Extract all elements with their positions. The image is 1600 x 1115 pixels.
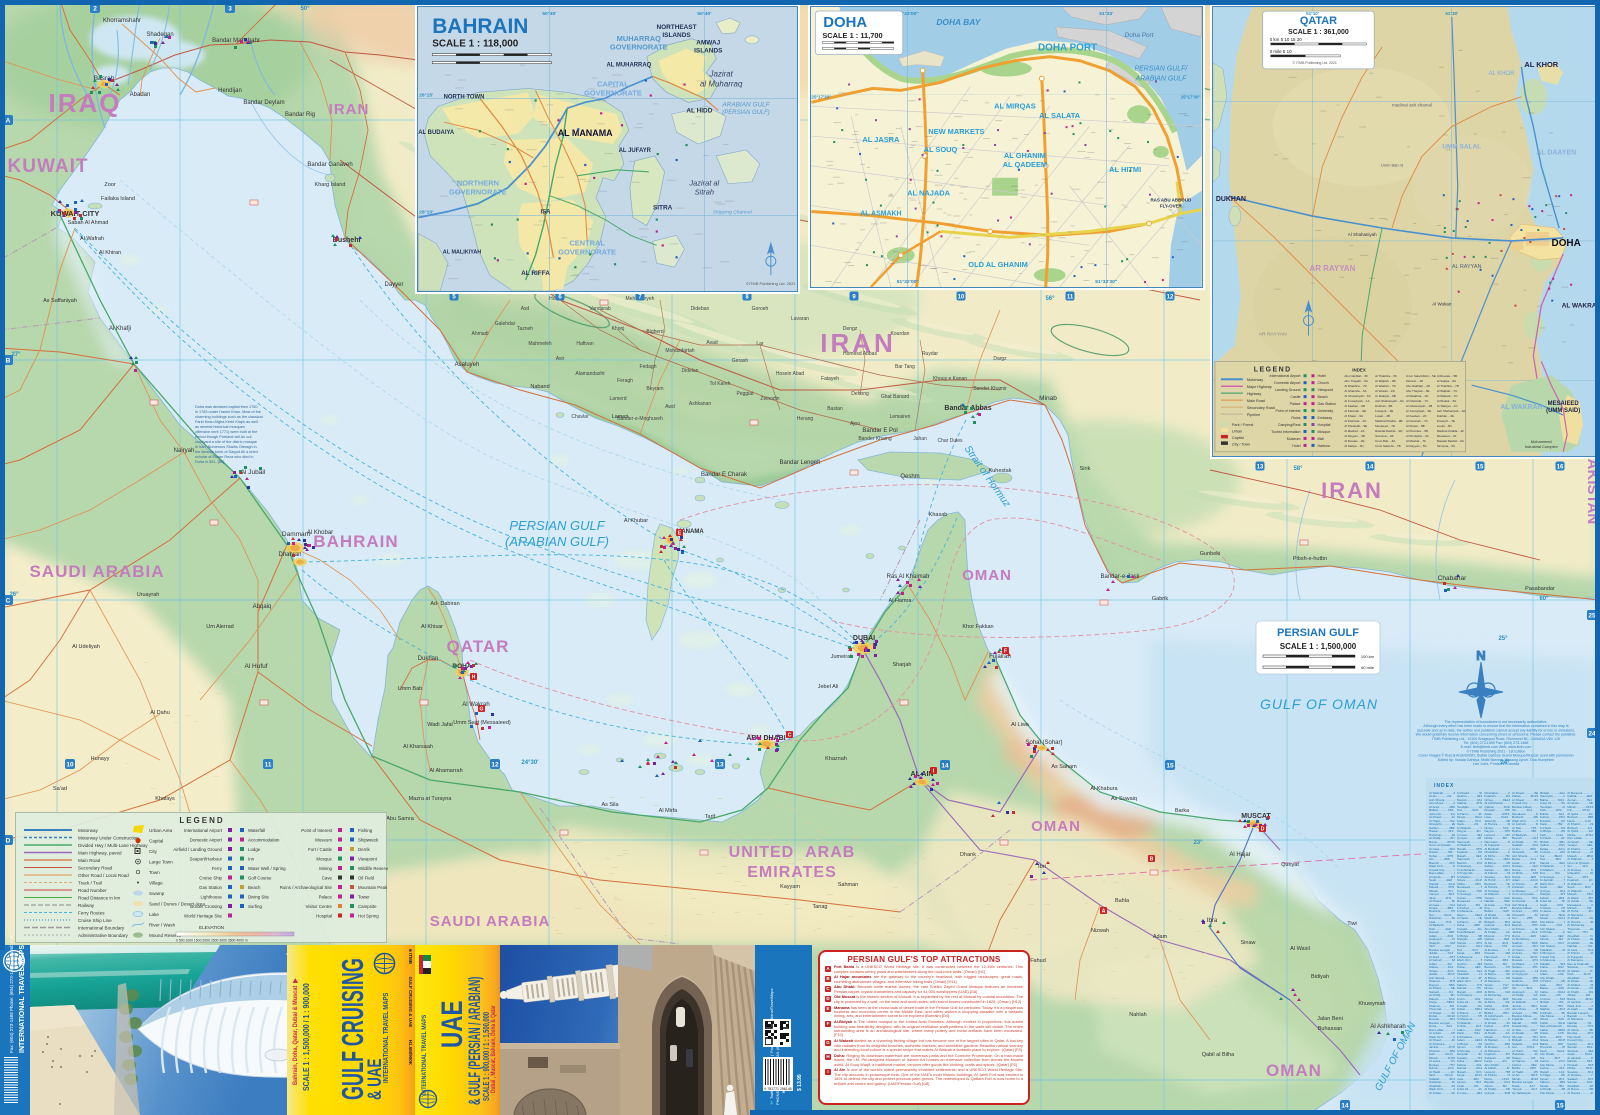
svg-text:Park / Forest: Park / Forest — [1232, 423, 1255, 427]
svg-text:Dideban: Dideban — [691, 306, 710, 312]
svg-text:Bandar Ganaveh: Bandar Ganaveh — [307, 162, 352, 168]
svg-text:EMIRATES: EMIRATES — [747, 864, 836, 881]
svg-text:BAHRAIN: BAHRAIN — [432, 15, 528, 38]
svg-text:26°: 26° — [9, 592, 19, 598]
svg-text:Al Ahamarrah: Al Ahamarrah — [429, 768, 462, 774]
svg-text:AL HIDD: AL HIDD — [686, 107, 712, 114]
svg-text:Village: Village — [149, 881, 163, 886]
svg-text:Abadan: Abadan — [130, 92, 151, 98]
svg-text:PERSIAN GULF: PERSIAN GULF — [509, 518, 605, 533]
svg-text:Wildlife Reserve: Wildlife Reserve — [358, 866, 388, 871]
svg-text:Viewpoint: Viewpoint — [358, 857, 378, 862]
svg-text:Uruayrah: Uruayrah — [137, 592, 160, 598]
svg-text:ISA: ISA — [540, 210, 551, 216]
svg-text:25°: 25° — [1498, 636, 1508, 642]
svg-text:Jazirat: Jazirat — [709, 70, 734, 79]
svg-text:15: 15 — [1556, 1103, 1564, 1110]
svg-text:Dukhan: Dukhan — [418, 656, 439, 662]
svg-text:10: 10 — [66, 762, 74, 769]
svg-text:AL GHANIM: AL GHANIM — [1004, 151, 1046, 160]
svg-text:Mining: Mining — [319, 866, 332, 871]
svg-text:PERSIAN GULF: PERSIAN GULF — [1277, 627, 1359, 639]
svg-text:Al Mashaf....2A: Al Mashaf....2A — [1344, 429, 1364, 433]
svg-text:Al Udeliyah: Al Udeliyah — [72, 644, 100, 650]
svg-text:Asir: Asir — [556, 356, 565, 362]
svg-text:Jahan: Jahan — [913, 436, 927, 442]
svg-text:Ruydar: Ruydar — [922, 351, 938, 357]
svg-text:SITRA: SITRA — [653, 205, 673, 212]
svg-text:Al Mashaf....7F: Al Mashaf....7F — [1406, 439, 1426, 443]
svg-text:Tiwi: Tiwi — [1347, 921, 1357, 927]
svg-text:AL ASMAKH: AL ASMAKH — [860, 211, 901, 218]
svg-text:Simsima....1B: Simsima....1B — [1375, 434, 1393, 438]
svg-text:Bandar E Pol: Bandar E Pol — [862, 428, 897, 434]
svg-text:Lighthouse: Lighthouse — [201, 895, 223, 900]
svg-text:Mosque: Mosque — [1317, 430, 1330, 434]
svg-text:UNITED ARAB: UNITED ARAB — [729, 844, 856, 861]
svg-text:Umm Bab....3A: Umm Bab....3A — [1375, 439, 1395, 443]
svg-text:Al Khulayfat....9A: Al Khulayfat....9A — [1406, 434, 1429, 438]
svg-text:As Sila: As Sila — [601, 802, 619, 808]
svg-text:Khouy e Kanan: Khouy e Kanan — [933, 376, 967, 382]
svg-text:Chabahar: Chabahar — [1438, 575, 1467, 582]
svg-text:51°32'00": 51°32'00" — [897, 279, 920, 285]
svg-text:Diving Site: Diving Site — [248, 895, 270, 900]
svg-text:Kourdan: Kourdan — [891, 331, 910, 337]
svg-text:Fort / Castle: Fort / Castle — [308, 847, 332, 852]
svg-text:Camping/Rest: Camping/Rest — [1278, 423, 1301, 427]
svg-text:AR RAYYAN: AR RAYYAN — [1259, 331, 1287, 337]
svg-text:Tol Kareh: Tol Kareh — [709, 381, 730, 387]
svg-text:Bandar Deylam: Bandar Deylam — [243, 100, 284, 106]
svg-text:Lan Joshi, Printed in Canada: Lan Joshi, Printed in Canada — [1473, 762, 1519, 766]
svg-text:Al Ghuwariyah....2B: Al Ghuwariyah....2B — [1406, 404, 1432, 408]
svg-text:Asd: Asd — [521, 306, 530, 312]
svg-text:Al Kharrara....2C: Al Kharrara....2C — [1344, 419, 1367, 423]
svg-text:Main Road: Main Road — [1247, 399, 1265, 403]
svg-text:0 mile 5 10: 0 mile 5 10 — [1270, 49, 1292, 54]
svg-text:Galehdar: Galehdar — [495, 321, 516, 327]
svg-text:Hendijan: Hendijan — [218, 88, 242, 94]
svg-text:27°: 27° — [11, 352, 21, 358]
svg-text:MESAIEED: MESAIEED — [1548, 401, 1580, 407]
svg-text:World Heritage Site: World Heritage Site — [184, 914, 223, 919]
svg-text:Madinat Khalifa....9B: Madinat Khalifa....9B — [1375, 419, 1402, 423]
svg-text:Naband: Naband — [530, 384, 549, 390]
svg-text:INDEX: INDEX — [1352, 367, 1366, 372]
svg-text:Ash Shahaniyah....9A: Ash Shahaniyah....9A — [1437, 409, 1466, 413]
svg-text:SCALE 1 : 118,000: SCALE 1 : 118,000 — [432, 39, 519, 50]
svg-text:Al Wakrah....7C: Al Wakrah....7C — [1437, 394, 1459, 398]
svg-text:Ar Rakiyat....8B: Ar Rakiyat....8B — [1375, 394, 1396, 398]
svg-text:Zeinodin: Zeinodin — [760, 396, 779, 402]
svg-text:Road Distance in km: Road Distance in km — [78, 896, 121, 901]
svg-text:Hotel: Hotel — [1292, 444, 1301, 448]
svg-text:Motorway: Motorway — [1247, 378, 1263, 382]
svg-text:50°30': 50°30' — [542, 11, 556, 17]
svg-text:Point of Interest: Point of Interest — [1275, 409, 1300, 413]
svg-text:Simsima....6C: Simsima....6C — [1437, 444, 1456, 448]
svg-text:© ITMB Publishing Ltd. 2021: © ITMB Publishing Ltd. 2021 — [1293, 61, 1337, 65]
svg-text:Tanag: Tanag — [813, 904, 828, 910]
svg-text:15: 15 — [1166, 763, 1174, 770]
svg-text:Sitrah: Sitrah — [695, 188, 714, 197]
svg-text:Swamp: Swamp — [149, 891, 165, 896]
svg-text:Minab: Minab — [1039, 395, 1057, 402]
svg-text:(ARABIAN GULF): (ARABIAN GULF) — [505, 534, 609, 549]
svg-text:courtyard a site of the distri: courtyard a site of the distric mosque — [195, 440, 257, 444]
svg-text:Peggiat: Peggiat — [737, 391, 755, 397]
svg-text:Palace: Palace — [1290, 402, 1301, 406]
svg-text:Qabil al Bilha: Qabil al Bilha — [1202, 1052, 1235, 1058]
svg-text:Abu Thaylah....8A: Abu Thaylah....8A — [1344, 379, 1368, 383]
svg-text:offensive nerit 1771) were: offensive nerit 1771) were built at the — [195, 430, 257, 434]
svg-text:Jazirat al: Jazirat al — [688, 179, 719, 188]
svg-text:As Suwaiq: As Suwaiq — [1111, 796, 1137, 802]
svg-text:Major Highway: Major Highway — [1247, 385, 1272, 389]
svg-text:Madinat Khalifa....4F: Madinat Khalifa....4F — [1437, 429, 1464, 433]
svg-text:Al Khisar: Al Khisar — [421, 624, 443, 630]
svg-text:Lar: Lar — [756, 341, 764, 347]
svg-text:Hosein Abad: Hosein Abad — [776, 371, 805, 377]
svg-text:Railway: Railway — [78, 903, 95, 908]
svg-text:MUHARRAQ: MUHARRAQ — [617, 34, 661, 43]
svg-text:Jalan Beni: Jalan Beni — [1317, 1016, 1343, 1022]
svg-text:Visitor Centre: Visitor Centre — [305, 904, 332, 909]
svg-text:Feragh: Feragh — [617, 378, 633, 384]
svg-text:Domestic Airport: Domestic Airport — [190, 838, 223, 843]
svg-text:C: C — [6, 598, 11, 605]
svg-text:13: 13 — [716, 762, 724, 769]
svg-text:Lusail....3B: Lusail....3B — [1375, 414, 1390, 418]
svg-text:NORTHEAST: NORTHEAST — [656, 24, 696, 31]
svg-text:Bandar-e-Jask: Bandar-e-Jask — [1100, 574, 1140, 580]
svg-text:Bastan: Bastan — [827, 406, 843, 412]
svg-text:Mesaieed....2F: Mesaieed....2F — [1437, 434, 1457, 438]
svg-text:Ruins: Ruins — [1291, 416, 1300, 420]
svg-text:Zekreet....1D: Zekreet....1D — [1406, 379, 1423, 383]
svg-text:12: 12 — [1167, 295, 1174, 301]
svg-text:Sa'ad: Sa'ad — [53, 786, 67, 792]
svg-text:A: A — [1102, 909, 1106, 915]
svg-text:Lodge: Lodge — [248, 847, 261, 852]
svg-text:Abu Thaylah....5E: Abu Thaylah....5E — [1406, 389, 1430, 393]
svg-text:FLY-OVER: FLY-OVER — [1160, 204, 1183, 209]
svg-text:Al Shahaniyah: Al Shahaniyah — [1348, 232, 1377, 237]
svg-text:10: 10 — [958, 295, 965, 301]
svg-text:Umm Bab: Umm Bab — [398, 686, 422, 692]
svg-text:G: G — [480, 707, 484, 713]
svg-text:Bigherd: Bigherd — [646, 329, 663, 335]
svg-text:AL MALIKIYAH: AL MALIKIYAH — [443, 249, 482, 255]
svg-text:14: 14 — [1367, 465, 1374, 471]
svg-text:100 km: 100 km — [1361, 654, 1375, 659]
svg-text:Motorway: Motorway — [78, 828, 99, 833]
svg-text:Embassy: Embassy — [1317, 416, 1332, 420]
svg-text:©ITMB Publishing Ltd. 2021: ©ITMB Publishing Ltd. 2021 — [746, 281, 796, 286]
svg-text:SCALE 1 : 11,700: SCALE 1 : 11,700 — [822, 31, 882, 40]
svg-text:City / Town: City / Town — [1232, 442, 1250, 446]
svg-text:Bander Khamg: Bander Khamg — [858, 436, 892, 442]
svg-text:Al Jumayliyah....1A: Al Jumayliyah....1A — [1344, 399, 1369, 403]
svg-text:Al Wajbah....4B: Al Wajbah....4B — [1375, 379, 1395, 383]
svg-text:Fishing: Fishing — [358, 828, 373, 833]
svg-text:Umm Salal Mohd....5E: Umm Salal Mohd....5E — [1406, 374, 1436, 378]
svg-text:Derrik: Derrik — [358, 847, 371, 852]
svg-text:16: 16 — [1557, 465, 1564, 471]
svg-text:As Saham: As Saham — [1051, 764, 1077, 770]
svg-text:25°17'30": 25°17'30" — [811, 94, 831, 99]
svg-text:3: 3 — [228, 6, 232, 13]
svg-text:Lemairen: Lemairen — [890, 414, 911, 420]
svg-text:Al Ashkharah: Al Ashkharah — [1370, 1024, 1405, 1030]
svg-text:AL RAYYAN: AL RAYYAN — [1452, 264, 1482, 270]
svg-text:Sharjah: Sharjah — [893, 662, 912, 668]
svg-text:Lameri: Lameri — [612, 414, 629, 420]
svg-text:Didelan: Didelan — [682, 368, 699, 374]
svg-text:Beach: Beach — [248, 885, 261, 890]
svg-text:Capital: Capital — [149, 839, 163, 844]
svg-text:Cave: Cave — [322, 876, 333, 881]
svg-text:Castle: Castle — [1290, 395, 1300, 399]
svg-text:Gerash: Gerash — [732, 358, 749, 364]
svg-text:Tazneh: Tazneh — [517, 326, 533, 332]
svg-text:Khuwymah: Khuwymah — [1358, 1001, 1385, 1007]
svg-text:Al Ghuwariyah....6C: Al Ghuwariyah....6C — [1344, 394, 1371, 398]
svg-text:Mountain Peak: Mountain Peak — [358, 885, 388, 890]
svg-text:Cruise Ship: Cruise Ship — [199, 876, 222, 881]
svg-text:IRAN: IRAN — [329, 101, 370, 118]
svg-text:Ash Shahaniyah....9A: Ash Shahaniyah....9A — [1375, 399, 1404, 403]
svg-text:River / Wash: River / Wash — [149, 923, 176, 928]
svg-text:Khaznah: Khaznah — [825, 756, 847, 762]
svg-text:Char Dules: Char Dules — [937, 438, 963, 444]
svg-text:Al Khabura: Al Khabura — [1090, 786, 1118, 792]
svg-text:ISLANDS: ISLANDS — [694, 48, 723, 55]
svg-text:(UMM SAID): (UMM SAID) — [1546, 408, 1580, 414]
svg-text:Shipwreck: Shipwreck — [358, 838, 379, 843]
svg-text:Nahlah: Nahlah — [1129, 1012, 1146, 1018]
svg-text:Kharg Island: Kharg Island — [315, 182, 346, 188]
svg-text:Mesaieed....7E: Mesaieed....7E — [1375, 424, 1395, 428]
svg-text:AL NAJADA: AL NAJADA — [907, 189, 950, 198]
svg-text:Dukhan....8B: Dukhan....8B — [1375, 404, 1392, 408]
svg-text:14: 14 — [941, 763, 949, 770]
svg-text:Museum: Museum — [1287, 437, 1301, 441]
svg-text:Ad- Dabiran: Ad- Dabiran — [430, 601, 459, 607]
svg-text:Jebel Ali: Jebel Ali — [818, 684, 839, 690]
svg-text:ARABIAN GULF: ARABIAN GULF — [721, 101, 770, 108]
svg-text:Gabrik: Gabrik — [1152, 596, 1168, 602]
svg-text:DUKHAN: DUKHAN — [1216, 196, 1246, 203]
svg-text:Seaport/Harbour: Seaport/Harbour — [190, 857, 223, 862]
svg-text:Al Hamra: Al Hamra — [889, 598, 913, 604]
svg-text:QATAR: QATAR — [447, 637, 510, 656]
svg-text:F: F — [1004, 649, 1007, 655]
svg-text:Sahman: Sahman — [838, 882, 859, 888]
svg-text:Bandar Mahshahr: Bandar Mahshahr — [212, 38, 260, 44]
svg-text:Haftvan: Haftvan — [576, 341, 593, 347]
svg-text:Main Road: Main Road — [78, 858, 101, 863]
svg-text:OMAN: OMAN — [1266, 1061, 1322, 1080]
svg-text:Lavaran: Lavaran — [791, 316, 809, 322]
svg-text:University: University — [1317, 409, 1333, 413]
svg-text:Umm Bab rd: Umm Bab rd — [1381, 162, 1403, 167]
svg-text:Al Khafji: Al Khafji — [109, 326, 131, 332]
svg-text:Bandar E Charak: Bandar E Charak — [701, 472, 748, 478]
svg-text:SCALE 1 : 1,500,000: SCALE 1 : 1,500,000 — [1280, 642, 1357, 651]
svg-text:Barka: Barka — [1175, 808, 1190, 814]
svg-text:Bandar Lengeh: Bandar Lengeh — [779, 460, 820, 466]
svg-text:Large Town: Large Town — [149, 860, 173, 865]
svg-text:Bander Khamir: Bander Khamir — [973, 386, 1007, 392]
svg-text:AL MANAMA: AL MANAMA — [558, 128, 613, 138]
svg-text:Adam: Adam — [1153, 934, 1168, 940]
svg-text:50°40': 50°40' — [697, 11, 711, 17]
svg-text:AL MUHARRAQ: AL MUHARRAQ — [606, 63, 651, 69]
svg-text:Sinaw: Sinaw — [1241, 940, 1256, 946]
svg-text:Church: Church — [1317, 381, 1329, 385]
svg-text:RAS ABU ABBOUD: RAS ABU ABBOUD — [1150, 198, 1192, 203]
svg-text:AL SOUQ: AL SOUQ — [924, 145, 958, 154]
svg-text:Bandar Rig: Bandar Rig — [285, 112, 315, 118]
svg-text:Doha in 551. [B6]: Doha in 551. [B6] — [195, 460, 224, 464]
svg-text:Zoor: Zoor — [104, 182, 115, 188]
svg-text:0 500 1000 1500 2000 250: 0 500 1000 1500 2000 2500 3000 3500 4000… — [176, 939, 248, 943]
svg-text:Dehong: Dehong — [851, 391, 869, 397]
svg-text:24°30': 24°30' — [521, 760, 539, 766]
svg-text:Abu Samra: Abu Samra — [386, 816, 414, 822]
svg-text:AR RAYYAN: AR RAYYAN — [1310, 264, 1356, 273]
svg-text:Al Khubar: Al Khubar — [624, 518, 648, 524]
svg-text:Palace: Palace — [319, 895, 333, 900]
svg-text:IRAQ: IRAQ — [49, 88, 122, 118]
svg-text:Al Wukair....1B: Al Wukair....1B — [1375, 389, 1394, 393]
svg-text:Bandar Abbas: Bandar Abbas — [944, 405, 991, 412]
svg-text:OLD AL GHANIM: OLD AL GHANIM — [968, 260, 1028, 269]
svg-text:Secondary Road: Secondary Road — [1247, 406, 1275, 410]
svg-text:Ibra: Ibra — [1207, 918, 1218, 924]
svg-text:Ferry Routes: Ferry Routes — [78, 911, 105, 916]
svg-text:Nizwah: Nizwah — [1091, 928, 1109, 934]
svg-text:Industrial Complex: Industrial Complex — [1525, 444, 1558, 449]
svg-text:B: B — [1150, 857, 1154, 863]
svg-text:Fedagh: Fedagh — [640, 364, 657, 370]
svg-text:2: 2 — [93, 6, 97, 13]
svg-text:Waterfall: Waterfall — [248, 828, 265, 833]
svg-text:Dhank: Dhank — [960, 852, 976, 858]
svg-text:Doha Port: Doha Port — [1125, 32, 1155, 39]
svg-text:Ajoo: Ajoo — [850, 421, 860, 427]
svg-text:Gas Station: Gas Station — [199, 885, 222, 890]
svg-text:SAUDI ARABIA: SAUDI ARABIA — [430, 913, 551, 930]
svg-text:Capital: Capital — [1232, 436, 1244, 440]
svg-text:Tourist Information: Tourist Information — [1271, 430, 1300, 434]
svg-text:Abu Nakhlah....2D: Abu Nakhlah....2D — [1406, 384, 1430, 388]
svg-text:Museum: Museum — [315, 838, 332, 843]
svg-text:C: C — [788, 733, 792, 739]
svg-text:Jumeirah: Jumeirah — [831, 654, 854, 660]
svg-text:Al Dhakhira....1D: Al Dhakhira....1D — [1406, 394, 1428, 398]
svg-text:Chavlar: Chavlar — [571, 414, 589, 420]
svg-text:Road Number: Road Number — [78, 888, 107, 893]
svg-text:60°: 60° — [1539, 596, 1549, 602]
svg-text:GULF OF OMAN: GULF OF OMAN — [1260, 696, 1378, 712]
svg-text:Al Rayyan....4B: Al Rayyan....4B — [1344, 434, 1364, 438]
svg-text:Administrative Boundary: Administrative Boundary — [78, 933, 128, 938]
svg-text:Landing Ground: Landing Ground — [1275, 388, 1301, 392]
svg-text:Gas Station: Gas Station — [1317, 402, 1336, 406]
svg-text:Beyram: Beyram — [646, 386, 663, 392]
svg-text:DUBAI: DUBAI — [853, 635, 875, 642]
svg-text:AL MIRQAS: AL MIRQAS — [994, 101, 1036, 110]
svg-text:D: D — [6, 838, 11, 845]
svg-text:H: H — [472, 675, 476, 681]
svg-text:Dayyer: Dayyer — [384, 282, 403, 288]
svg-text:Al Jumayliyah....5E: Al Jumayliyah....5E — [1406, 409, 1431, 413]
svg-text:DOHA: DOHA — [1552, 238, 1581, 249]
svg-text:13: 13 — [1257, 465, 1264, 471]
svg-text:Viewpoint: Viewpoint — [1317, 388, 1332, 392]
svg-text:Hot Spring: Hot Spring — [358, 914, 379, 919]
svg-text:Doha was declared capital the: Doha was declared capital then 1760 — [195, 405, 257, 409]
svg-text:Vandarab: Vandarab — [589, 306, 611, 312]
svg-text:Hospital: Hospital — [1317, 423, 1330, 427]
svg-text:QATAR: QATAR — [1300, 15, 1337, 27]
svg-text:Al Gharrafa....3A: Al Gharrafa....3A — [1344, 389, 1366, 393]
svg-text:Harbour: Harbour — [1317, 444, 1331, 448]
svg-text:Oil Field: Oil Field — [358, 876, 375, 881]
svg-text:Fahud: Fahud — [1030, 958, 1046, 964]
svg-text:Al Wafrah: Al Wafrah — [80, 236, 104, 242]
svg-text:Al Liwa: Al Liwa — [1011, 722, 1030, 728]
svg-text:Wadi Jafal: Wadi Jafal — [427, 722, 452, 728]
svg-text:Water Well / Spring: Water Well / Spring — [248, 866, 286, 871]
svg-text:Pibsh-e-hutbn: Pibsh-e-hutbn — [1293, 556, 1327, 562]
svg-text:Ras Al Khaimah: Ras Al Khaimah — [887, 574, 930, 580]
svg-text:Khonj: Khonj — [612, 326, 625, 332]
svg-text:Al Rayyan....5C: Al Rayyan....5C — [1406, 444, 1427, 448]
svg-text:B: B — [6, 358, 11, 365]
svg-text:58°: 58° — [1293, 466, 1303, 472]
svg-text:GOVERNORATE: GOVERNORATE — [610, 43, 668, 52]
svg-text:IRAN: IRAN — [1321, 478, 1383, 503]
svg-text:Airfield / Landing Ground: Airfield / Landing Ground — [173, 847, 222, 852]
svg-text:Ruins / Archaeological Site: Ruins / Archaeological Site — [280, 885, 333, 890]
svg-text:AL WAKRAH: AL WAKRAH — [1500, 404, 1542, 411]
svg-text:Al Karanah....9E: Al Karanah....9E — [1344, 409, 1366, 413]
svg-text:Qeshm: Qeshm — [900, 474, 919, 480]
svg-text:Mohazdartah: Mohazdartah — [665, 348, 694, 354]
svg-text:Hunayy: Hunayy — [91, 756, 110, 762]
svg-text:A: A — [6, 118, 11, 125]
svg-text:Herang: Herang — [797, 416, 814, 422]
svg-text:Lusail....6D: Lusail....6D — [1437, 424, 1452, 428]
svg-text:Accommodation: Accommodation — [248, 838, 280, 843]
svg-text:NEW MARKETS: NEW MARKETS — [928, 127, 984, 136]
svg-text:Umm Salal Ali....7B: Umm Salal Ali....7B — [1375, 444, 1400, 448]
svg-text:International Airport: International Airport — [184, 828, 223, 833]
svg-text:50°: 50° — [300, 6, 310, 12]
svg-text:Fuwayrit....2E: Fuwayrit....2E — [1375, 409, 1393, 413]
svg-text:Pipeline: Pipeline — [1247, 413, 1260, 417]
svg-text:Avad: Avad — [706, 340, 718, 346]
svg-text:AL DAAYEN: AL DAAYEN — [1536, 149, 1576, 156]
svg-text:Kuhestak: Kuhestak — [989, 468, 1012, 474]
svg-text:Al Mirfa: Al Mirfa — [659, 808, 679, 814]
svg-text:Al Wajbah....7C: Al Wajbah....7C — [1437, 389, 1458, 393]
svg-text:26°15': 26°15' — [419, 92, 433, 98]
